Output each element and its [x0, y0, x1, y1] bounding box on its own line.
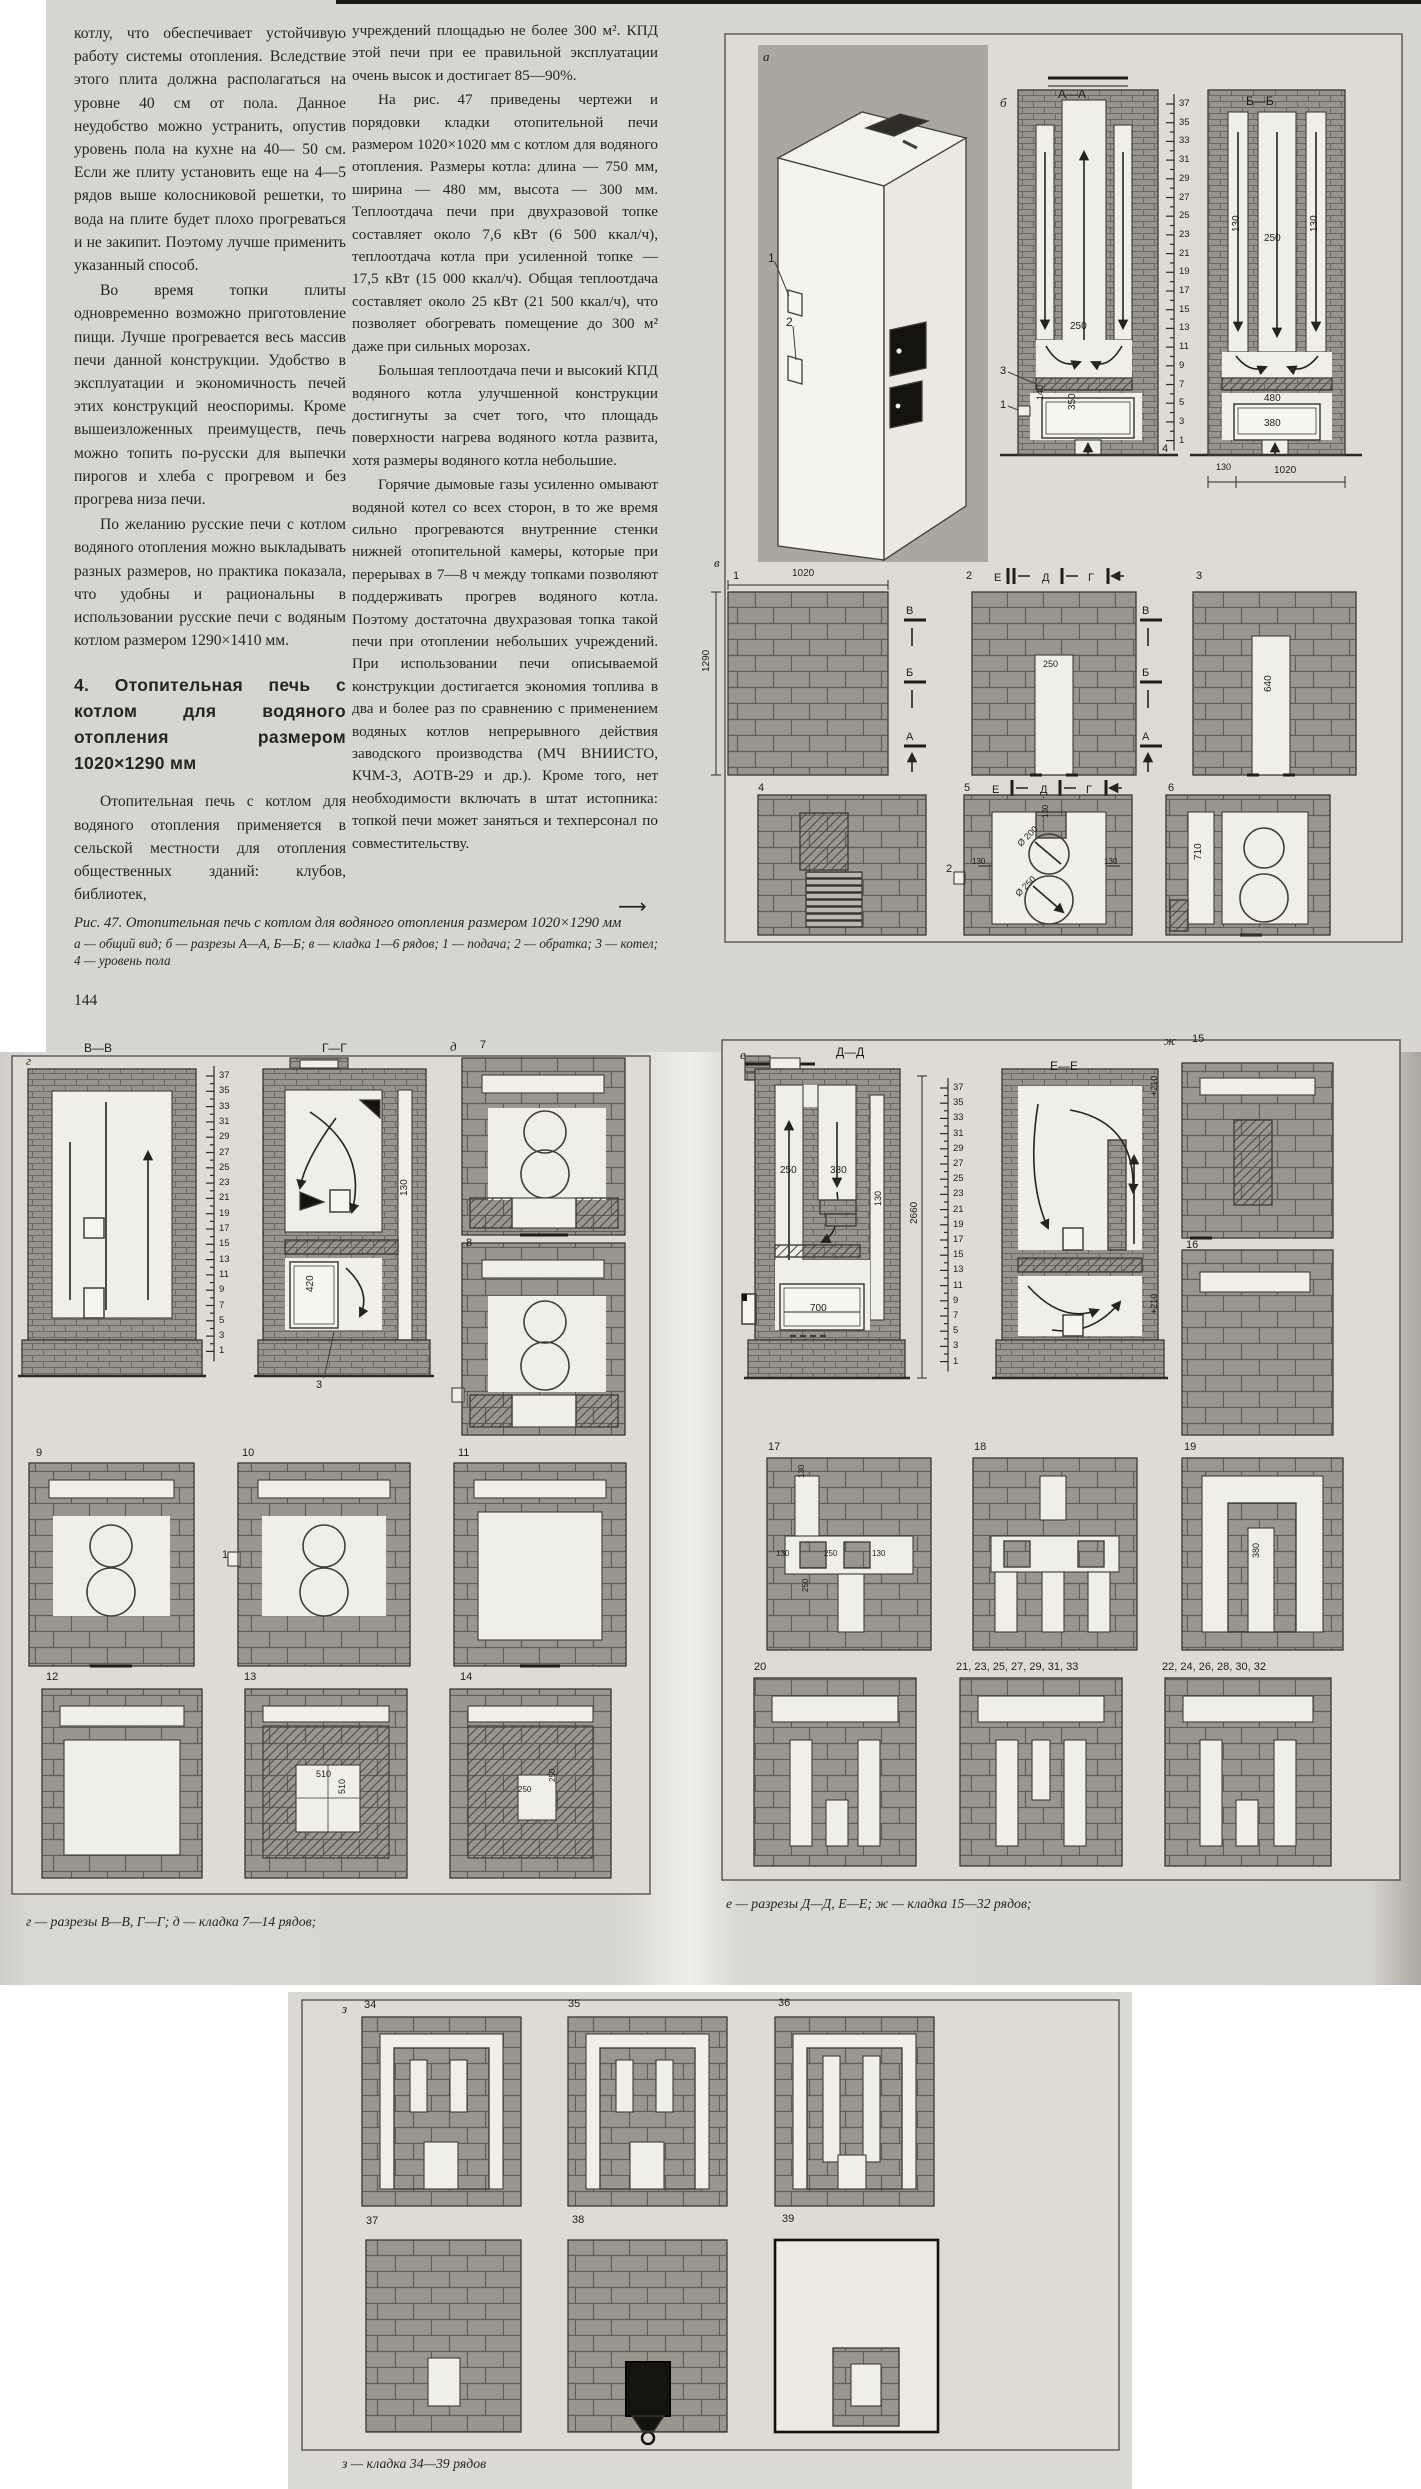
- section-A-A: [1000, 78, 1178, 456]
- section-D-D: [742, 1056, 927, 1378]
- section-E-E: [992, 1069, 1168, 1378]
- section-G-G: [254, 1058, 434, 1378]
- section-V-V: [18, 1069, 206, 1376]
- damper: [626, 2362, 670, 2416]
- book-page-scan: котлу, что обеспечивает устойчивую работ…: [0, 0, 1421, 2489]
- plans-rows-1-6: [711, 568, 1356, 935]
- firebox-door: [890, 322, 926, 376]
- ash-door: [890, 381, 922, 428]
- section-B-B: [1190, 90, 1362, 488]
- stove-general-view-3d: [775, 112, 966, 560]
- figure-drawings: [0, 0, 1421, 2489]
